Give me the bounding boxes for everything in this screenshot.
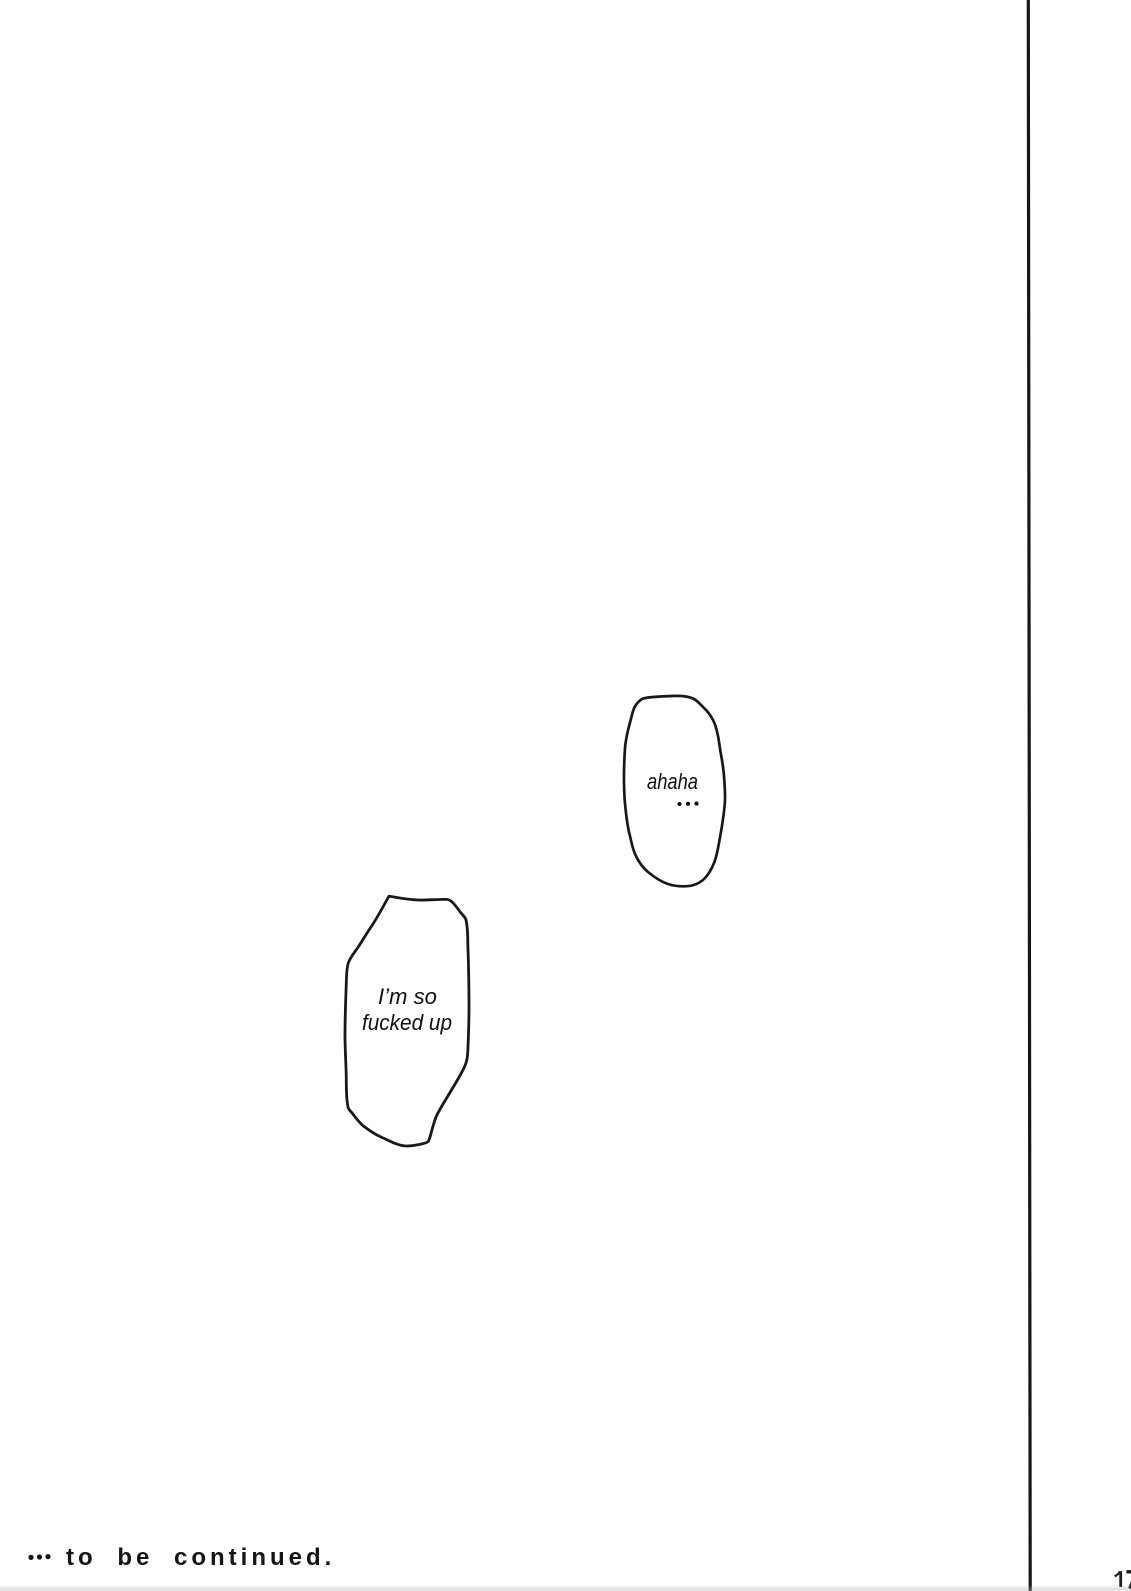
svg-text:fucked up: fucked up <box>362 1010 452 1035</box>
svg-text:ahaha: ahaha <box>647 769 698 794</box>
svg-text:I’m so: I’m so <box>378 984 437 1009</box>
